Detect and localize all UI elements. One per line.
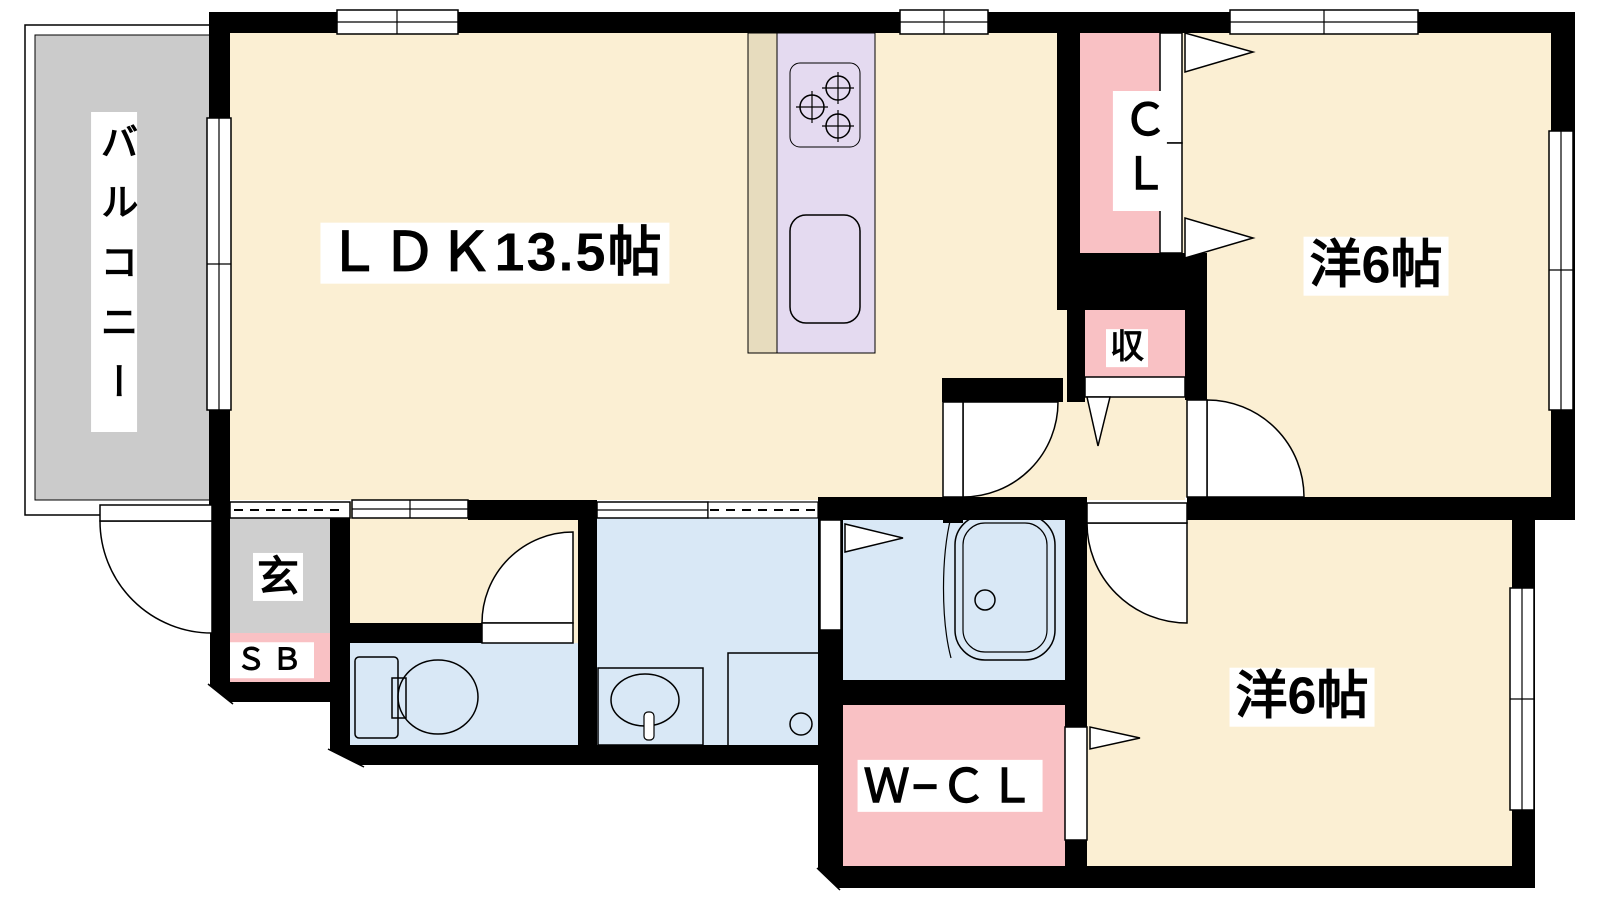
- bedroom-bottom-label: 洋6帖: [1230, 668, 1375, 727]
- balcony-label: バルコニー: [91, 112, 137, 432]
- floors: [25, 25, 1551, 866]
- shoe-box-label: ＳＢ: [230, 642, 314, 678]
- closet-cl-label: ＣＬ: [1113, 91, 1167, 211]
- walk-in-closet-label: Ｗ−ＣＬ: [858, 760, 1043, 812]
- entrance-label: 玄: [253, 553, 303, 601]
- storage-label: 収: [1106, 329, 1148, 367]
- washroom-sliding-door: [597, 502, 818, 518]
- kitchen-counter-edge: [748, 33, 777, 353]
- toilet-floor: [350, 643, 578, 745]
- window-top-middle: [900, 10, 988, 34]
- washroom-floor: [597, 518, 818, 745]
- window-bedroom-top: [1549, 131, 1573, 410]
- window-top-left: [337, 10, 458, 34]
- entrance-door: [100, 505, 212, 633]
- floor-plan-canvas: バルコニー ＬＤＫ13.5帖 洋6帖 洋6帖 ＣＬ 収 玄 ＳＢ Ｗ−ＣＬ: [0, 0, 1600, 900]
- floor-plan-drawing: [0, 0, 1600, 900]
- stove: [790, 63, 860, 147]
- ldk-hall-opening: [352, 500, 468, 518]
- ldk-label: ＬＤＫ13.5帖: [320, 223, 669, 284]
- entrance-threshold: [230, 502, 350, 518]
- bedroom-top-label: 洋6帖: [1304, 237, 1449, 296]
- window-top-right: [1230, 10, 1418, 34]
- window-balcony: [207, 118, 231, 410]
- window-bedroom-bottom: [1510, 588, 1534, 810]
